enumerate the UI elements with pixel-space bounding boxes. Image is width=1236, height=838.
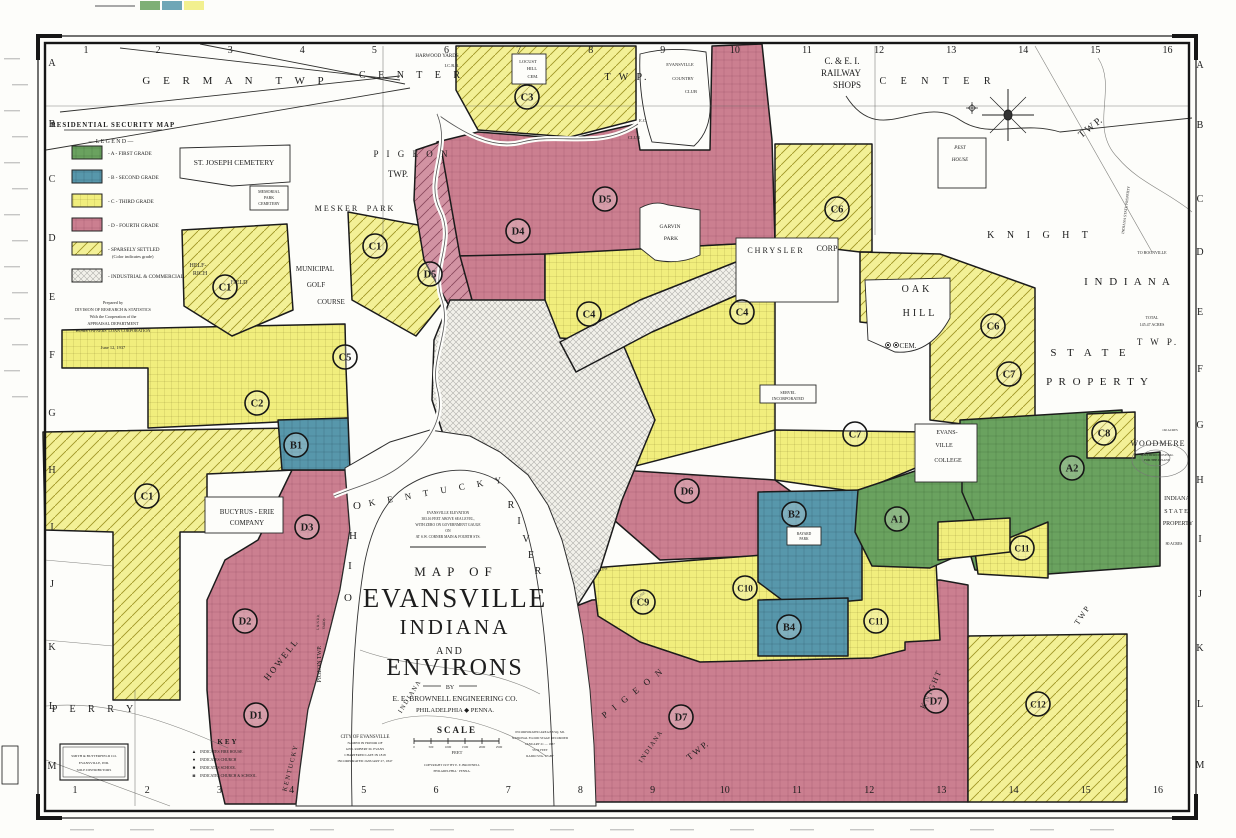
grid-col-top: 7 [516, 45, 521, 56]
zone-label-C1: C1 [135, 484, 159, 508]
incorporation-info-line: 53.74 FEET [532, 748, 548, 752]
grid-col-top: 14 [1018, 45, 1028, 56]
scale-tick-label: 1500 [462, 745, 469, 749]
map-label: MEMORIAL [258, 189, 280, 194]
map-label: YARDS [322, 618, 326, 629]
evansville-holc-map: 1234567891011121314151612345678910111213… [0, 0, 1236, 838]
map-label: CLUB [628, 135, 640, 140]
zone-id: C5 [339, 353, 352, 364]
grid-row-right: B [1197, 120, 1204, 131]
grid-col-top: 5 [372, 45, 377, 56]
map-label: PARK [664, 236, 678, 242]
map-label: INDIANA [1164, 496, 1190, 502]
legend-prepared-line: DIVISION OF RESEARCH & STATISTICS [75, 307, 151, 312]
map-label: CEMETERY [258, 201, 279, 206]
legend-prepared-line: With the Cooperation of the [90, 314, 137, 319]
incorporation-info-line: NATIONAL FLOOD STAGE RECORDED [512, 736, 569, 740]
title-by: BY [446, 685, 455, 691]
grid-col-bottom: 9 [650, 785, 655, 796]
grid-col-top: 16 [1163, 45, 1173, 56]
key-symbol: ▲ [192, 749, 196, 754]
grid-col-bottom: 5 [361, 785, 366, 796]
grid-col-top: 12 [874, 45, 884, 56]
map-label: T W P. [605, 72, 650, 83]
grid-col-top: 9 [660, 45, 665, 56]
scale-unit: FEET [452, 750, 463, 755]
zone-id: C4 [736, 308, 750, 319]
zone-label-C8: C8 [1092, 421, 1116, 445]
legend-swatch-b [72, 170, 102, 183]
scale-tick-label: 1000 [445, 745, 452, 749]
zone-id: A1 [891, 515, 904, 526]
grid-row-left: I [50, 522, 53, 533]
grid-row-right: D [1196, 247, 1203, 258]
zone-id: C4 [583, 310, 597, 321]
zone-label-C11: C11 [1010, 536, 1034, 560]
map-label: O [353, 500, 361, 512]
distributor-line: SMITH & BUTTERFIELD CO. [71, 754, 117, 758]
grid-row-right: L [1197, 699, 1203, 710]
zone-label-D5: D5 [593, 187, 617, 211]
map-label: SHOPS [833, 80, 861, 90]
grid-row-left: K [48, 642, 56, 653]
zone-id: C12 [1030, 700, 1046, 710]
distributor-line: SOLE DISTRIBUTORS [77, 768, 112, 772]
map-label: 80 ACRES [1166, 542, 1183, 546]
incorporation-info-line: INCORPORATED AREA 8.8 SQ. MI. [515, 730, 565, 734]
zone-label-A1: A1 [885, 507, 909, 531]
grid-col-bottom: 8 [578, 785, 583, 796]
map-label: COURSE [317, 298, 345, 306]
title-firm-city: PHILADELPHIA ◆ PENNA. [416, 707, 494, 714]
map-label: EVANSVILLE [666, 62, 694, 67]
grid-col-bottom: 4 [289, 785, 294, 796]
map-label: R [508, 500, 515, 511]
zone-id: D7 [930, 697, 943, 708]
map-label: HELF- [190, 263, 207, 269]
grid-col-bottom: 15 [1081, 785, 1091, 796]
zone-id: C6 [987, 322, 1000, 333]
legend-prepared-line: Prepared by [103, 300, 124, 305]
grid-row-right: M [1196, 760, 1205, 771]
zone-label-C4: C4 [577, 302, 601, 326]
elevation-note-line: AT S.W. CORNER MAIN & FOURTH STS. [416, 535, 481, 539]
map-label: L & N R.R. [316, 614, 321, 630]
map-label: SOUTHERN HOSPITAL [1141, 453, 1174, 457]
grid-row-right: J [1198, 589, 1202, 600]
scale-tick-label: 2000 [479, 745, 486, 749]
elevation-note-line: ON [445, 529, 451, 533]
legend-swatch-c [72, 194, 102, 207]
map-label: C. & E. I. [825, 56, 860, 66]
grid-row-left: F [49, 350, 55, 361]
grid-col-bottom: 7 [506, 785, 511, 796]
zone-label-B2: B2 [782, 502, 806, 526]
grid-row-right: F [1197, 364, 1203, 375]
city-info-line: CITY OF EVANSVILLE [341, 735, 390, 740]
map-label: FOR THE INSANE [1144, 458, 1170, 462]
grid-col-bottom: 6 [434, 785, 439, 796]
zone-id: C10 [737, 584, 753, 594]
legend-item-label: - INDUSTRIAL & COMMERCIAL [108, 274, 184, 280]
zone-label-C1: C1 [213, 275, 237, 299]
map-label: 145.47 ACRES [1140, 322, 1165, 327]
zone-label-C3: C3 [515, 85, 539, 109]
zone-id: A2 [1066, 464, 1079, 475]
zone-id: D5 [424, 270, 437, 281]
legend-swatch-a [72, 146, 102, 159]
key-symbol: ■ [193, 765, 196, 770]
zone-id: C7 [849, 430, 862, 441]
map-label: C E N T E R [359, 70, 465, 81]
zone-id: D3 [301, 523, 314, 534]
grid-row-right: K [1196, 643, 1204, 654]
map-label: MUNICIPAL [296, 265, 334, 273]
grid-row-right: E [1197, 307, 1203, 318]
grid-row-left: C [49, 174, 56, 185]
zone-id: B4 [783, 623, 796, 634]
scale-title: SCALE [437, 725, 477, 735]
incorporation-info-line: JANUARY 21 — 1937 [525, 742, 555, 746]
map-label: COUNTRY [672, 76, 694, 81]
zone-id: B1 [290, 441, 302, 452]
map-label: RAILWAY [821, 68, 861, 78]
grid-row-right: C [1197, 194, 1204, 205]
title-environs: ENVIRONS [386, 655, 523, 681]
grid-col-top: 15 [1090, 45, 1100, 56]
map-label: HARWOOD YARDS [415, 54, 459, 59]
map-label: BUCYRUS - ERIE [220, 508, 274, 516]
incorporation-info-line: RADIO STA. WGBF [526, 754, 554, 758]
zone-label-C11: C11 [864, 609, 888, 633]
map-label: E [528, 550, 534, 561]
map-label: CHRYSLER [747, 246, 804, 255]
zone-label-D1: D1 [244, 703, 268, 727]
grid-col-top: 10 [730, 45, 740, 56]
map-label: K N I G H T [987, 230, 1093, 241]
legend-item-label: - B - SECOND GRADE [108, 175, 159, 181]
map-label: PIGEON TWP. [317, 645, 323, 682]
map-label: EVANS- [936, 430, 957, 436]
map-label: TWP. [388, 169, 408, 179]
zone-id: D4 [512, 227, 526, 238]
map-label: COMPANY [230, 519, 264, 527]
map-label: CORP [817, 244, 838, 253]
grid-row-left: H [48, 465, 55, 476]
zone-label-D2: D2 [233, 609, 257, 633]
zone-id: C8 [1098, 429, 1111, 440]
legend-item-label: - D - FOURTH GRADE [108, 223, 159, 229]
key-item-label: INDICATES CHURCH & SCHOOL [200, 774, 257, 778]
map-label: H [349, 530, 357, 542]
map-label: GARVIN [660, 224, 681, 230]
zone-id: D7 [675, 713, 688, 724]
map-label: GOLF [307, 281, 325, 289]
zone-id: C1 [141, 492, 154, 503]
elevation-note-line: EVANSVILLE ELEVATION [427, 511, 470, 515]
zone-label-C2: C2 [245, 391, 269, 415]
grid-row-right: H [1196, 475, 1203, 486]
zone-label-C4: C4 [730, 300, 754, 324]
map-label: CLUB [685, 89, 697, 94]
zone-id: D2 [239, 617, 252, 628]
map-label: LOCUST [519, 59, 537, 64]
zone-label-C7: C7 [997, 362, 1021, 386]
grid-col-top: 1 [84, 45, 89, 56]
zone-id: C7 [1003, 370, 1016, 381]
key-title: KEY [217, 738, 238, 746]
zone-label-B1: B1 [284, 433, 308, 457]
map-label: PARK [264, 195, 274, 200]
grid-row-right: G [1196, 420, 1203, 431]
title-map-of: MAP OF [414, 564, 498, 579]
key-symbol: ● [193, 757, 196, 762]
legend-prepared-line: APPRAISAL DEPARTMENT [87, 321, 139, 326]
map-label: 160 ACRES [1162, 428, 1178, 432]
grid-col-bottom: 2 [145, 785, 150, 796]
zone-label-D5: D5 [418, 262, 442, 286]
map-label: P R O P E R T Y [1046, 376, 1150, 388]
key-item-label: INDICATES FIRE HOUSE [200, 750, 243, 754]
grid-col-bottom: 16 [1153, 785, 1163, 796]
map-label: PARK [367, 204, 396, 213]
map-label: VILLE [935, 443, 953, 449]
map-label: I [517, 516, 520, 527]
zone-id: C1 [219, 283, 232, 294]
legend-swatch-d [72, 218, 102, 231]
scale-tick-label: 2500 [496, 745, 503, 749]
map-label: BAYARD [797, 532, 812, 536]
map-label: HILL [527, 66, 537, 71]
zone-id: C2 [251, 399, 264, 410]
map-label: CEM. [900, 342, 917, 350]
zone-label-A2: A2 [1060, 456, 1084, 480]
map-label: HILL [903, 308, 938, 319]
zone-label-C7: C7 [843, 422, 867, 446]
zone-id: C11 [1014, 544, 1030, 554]
key-item-label: INDICATES SCHOOL [200, 766, 236, 770]
legend-swatch-sparse [72, 242, 102, 255]
zone-label-C1: C1 [363, 234, 387, 258]
map-label: E.C. [639, 118, 647, 123]
grid-col-bottom: 10 [720, 785, 730, 796]
map-label: P E R R Y [52, 704, 139, 715]
zone-id: C11 [868, 617, 884, 627]
map-label: MESKER [315, 204, 359, 213]
zone-id: D1 [250, 711, 263, 722]
title-city: EVANSVILLE [363, 583, 548, 613]
map-label: PARK [799, 537, 809, 541]
zone-id: D6 [681, 487, 694, 498]
map-label: T W P. [1137, 337, 1179, 347]
map-label: HOUSE [951, 158, 968, 163]
city-info-line: GEN. ROBERT M. EVANS [346, 747, 384, 751]
zone-id: C9 [637, 598, 650, 609]
zone-label-D4: D4 [506, 219, 530, 243]
key-symbol: ◙ [193, 773, 196, 778]
map-label: CEM. [528, 74, 539, 79]
map-label: PEST [953, 146, 967, 151]
map-label: TO BOONVILLE [1137, 250, 1167, 255]
grid-col-bottom: 14 [1009, 785, 1019, 796]
grid-col-bottom: 3 [217, 785, 222, 796]
grid-col-bottom: 12 [864, 785, 874, 796]
grid-col-top: 4 [300, 45, 305, 56]
map-label: C E N T E R [879, 76, 996, 87]
zone-label-D7: D7 [669, 705, 693, 729]
scanned-holc-map-page: 1234567891011121314151612345678910111213… [0, 0, 1236, 838]
grid-col-top: 2 [156, 45, 161, 56]
map-label: S T A T E [1050, 347, 1129, 359]
zone-label-C12: C12 [1026, 692, 1050, 716]
legend-item-label: - SPARSELY SETTLED [108, 247, 160, 253]
grid-row-left: M [48, 761, 57, 772]
map-label: V [522, 534, 530, 545]
zone-label-D3: D3 [295, 515, 319, 539]
zone-id: C1 [369, 242, 382, 253]
zone-id: D5 [599, 195, 612, 206]
elevation-note-line: WITH ZERO ON GOVERNMENT GAUGE [415, 523, 481, 527]
grid-row-left: E [49, 292, 55, 303]
map-label: R [535, 566, 542, 577]
title-firm: E. E. BROWNELL ENGINEERING CO. [393, 694, 518, 703]
scale-tick-label: 500 [429, 745, 434, 749]
legend-title: RESIDENTIAL SECURITY MAP [51, 122, 175, 129]
scale-copyright-line: COPYRIGHT 1937 BY E. E. BROWNELL [424, 763, 480, 767]
grid-col-bottom: 13 [936, 785, 946, 796]
zone-id: C6 [831, 205, 844, 216]
garvin-park-area [640, 203, 700, 262]
map-label: COLLEGE [934, 458, 962, 464]
zone-label-D7: D7 [924, 689, 948, 713]
map-label: S T A T E [1164, 509, 1188, 515]
map-label: T W P [275, 75, 328, 87]
map-label: I.C.R.R. [444, 63, 459, 68]
map-label: G E R M A N [142, 75, 257, 87]
map-label: ST. JOSEPH CEMETERY [194, 158, 275, 167]
zone-label-C5: C5 [333, 345, 357, 369]
city-info-line: CHARTERED LATE IN 1818 [344, 753, 386, 757]
grid-row-right: A [1196, 60, 1204, 71]
grid-col-top: 13 [946, 45, 956, 56]
grid-row-left: A [48, 58, 56, 69]
bayard-park-area [787, 527, 821, 545]
zone-label-D6: D6 [675, 479, 699, 503]
zone-id: B2 [788, 510, 800, 521]
grid-row-left: D [48, 233, 55, 244]
map-label: RICH [193, 271, 208, 277]
legend-prepared-line: HOME OWNERS' LOAN CORPORATION [76, 328, 151, 333]
map-label: P I G E O N [374, 149, 451, 159]
grid-col-top: 11 [802, 45, 812, 56]
grid-row-left: J [50, 579, 54, 590]
grid-col-bottom: 1 [73, 785, 78, 796]
legend-item-label: - C - THIRD GRADE [108, 199, 154, 205]
grid-row-left: G [48, 408, 55, 419]
map-label: TOTAL [1146, 315, 1159, 320]
key-item-label: INDICATES CHURCH [200, 758, 237, 762]
legend-item-sublabel: (Color indicates grade) [112, 254, 154, 259]
legend-swatch-industrial [72, 269, 102, 282]
legend-item-label: - A - FIRST GRADE [108, 151, 152, 157]
grid-row-right: I [1198, 534, 1201, 545]
zone-label-C6: C6 [825, 197, 849, 221]
map-label: INCORPORATED [772, 396, 804, 401]
legend-heading: — L E G E N D — [88, 139, 134, 145]
map-label: OAK [902, 284, 933, 295]
map-label: O [344, 592, 352, 604]
grid-col-top: 8 [588, 45, 593, 56]
grid-col-top: 3 [228, 45, 233, 56]
map-label: I [348, 560, 352, 572]
city-info-line: NAMED IN HONOR OF [348, 741, 383, 745]
zone-label-C6: C6 [981, 314, 1005, 338]
map-label: PROPERTY [1163, 521, 1194, 527]
zone-label-C10: C10 [733, 576, 757, 600]
scale-copyright-line: PHILADELPHIA · PENNA. [434, 769, 471, 773]
zone-label-B4: B4 [777, 615, 801, 639]
map-label: SERVEL [780, 390, 796, 395]
zone-id: C3 [521, 93, 534, 104]
title-state: INDIANA [400, 615, 511, 639]
map-label: I N D I A N A [1084, 276, 1172, 288]
map-label: WOODMERE [1130, 439, 1185, 448]
zone-label-C9: C9 [631, 590, 655, 614]
grid-col-bottom: 11 [792, 785, 802, 796]
